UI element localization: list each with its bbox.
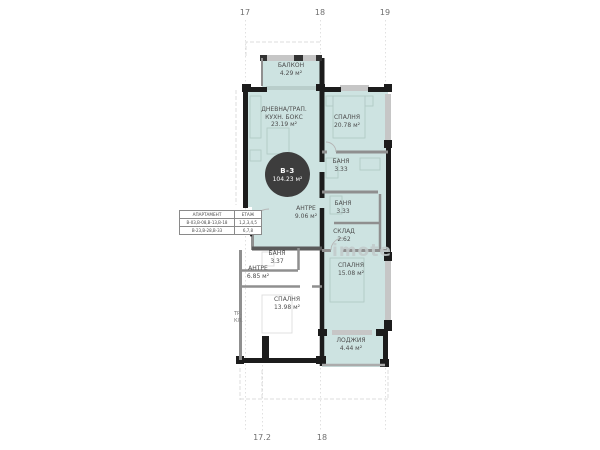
floor-plan-canvas: 17 18 19 17.2 18 imote В-3 104.23 м² БАЛ…: [0, 0, 600, 450]
room-label-hall: АНТРЕ 9.06 м²: [295, 205, 317, 220]
room-label-bedroom2: СПАЛНЯ 15.08 м²: [338, 262, 364, 277]
room-label-bath1: БАНЯ 3.33: [333, 158, 350, 173]
room-label-neighbor-bedroom: СПАЛНЯ 13.98 м²: [274, 296, 300, 311]
stairwell-label: ТР. КЛ.: [234, 311, 243, 325]
unit-badge-code: В-3: [280, 167, 295, 175]
room-label-balcony: БАЛКОН 4.29 м²: [278, 62, 304, 77]
grid-label-bottom-17-2: 17.2: [253, 433, 271, 442]
unit-badge: В-3 104.23 м²: [265, 152, 310, 197]
apartment-floor-legend: АПАРТАМЕНТ ЕТАЖ В-03,В-08,В-13,В-18 1,2,…: [179, 210, 262, 235]
grid-label-bottom-18: 18: [317, 433, 327, 442]
grid-label-top-19: 19: [380, 8, 390, 17]
room-label-storage: СКЛАД 2.62: [333, 228, 355, 243]
unit-badge-area: 104.23 м²: [273, 176, 303, 183]
legend-cell: В-23,В-28,В-33: [180, 227, 235, 235]
legend-header-floor: ЕТАЖ: [235, 211, 262, 219]
grid-label-top-17: 17: [240, 8, 250, 17]
room-label-bedroom1: СПАЛНЯ 20.78 м²: [334, 114, 360, 129]
legend-cell: 1,2,3,4,5: [235, 219, 262, 227]
legend-cell: 6,7,8: [235, 227, 262, 235]
watermark-text: imote: [332, 241, 392, 261]
legend-cell: В-03,В-08,В-13,В-18: [180, 219, 235, 227]
grid-label-top-18: 18: [315, 8, 325, 17]
room-label-neighbor-hall: АНТРЕ 6.85 м²: [247, 265, 269, 280]
room-label-loggia: ЛОДЖИЯ 4.44 м²: [336, 337, 365, 352]
unit-room-fills: [247, 58, 388, 367]
room-label-neighbor-bath: БАНЯ 3.37: [269, 250, 286, 265]
room-label-living: ДНЕВНА/ТРАП. КУХН. БОКС 23.19 м²: [261, 106, 307, 129]
room-label-bath2: БАНЯ 3.33: [335, 200, 352, 215]
legend-header-apartment: АПАРТАМЕНТ: [180, 211, 235, 219]
